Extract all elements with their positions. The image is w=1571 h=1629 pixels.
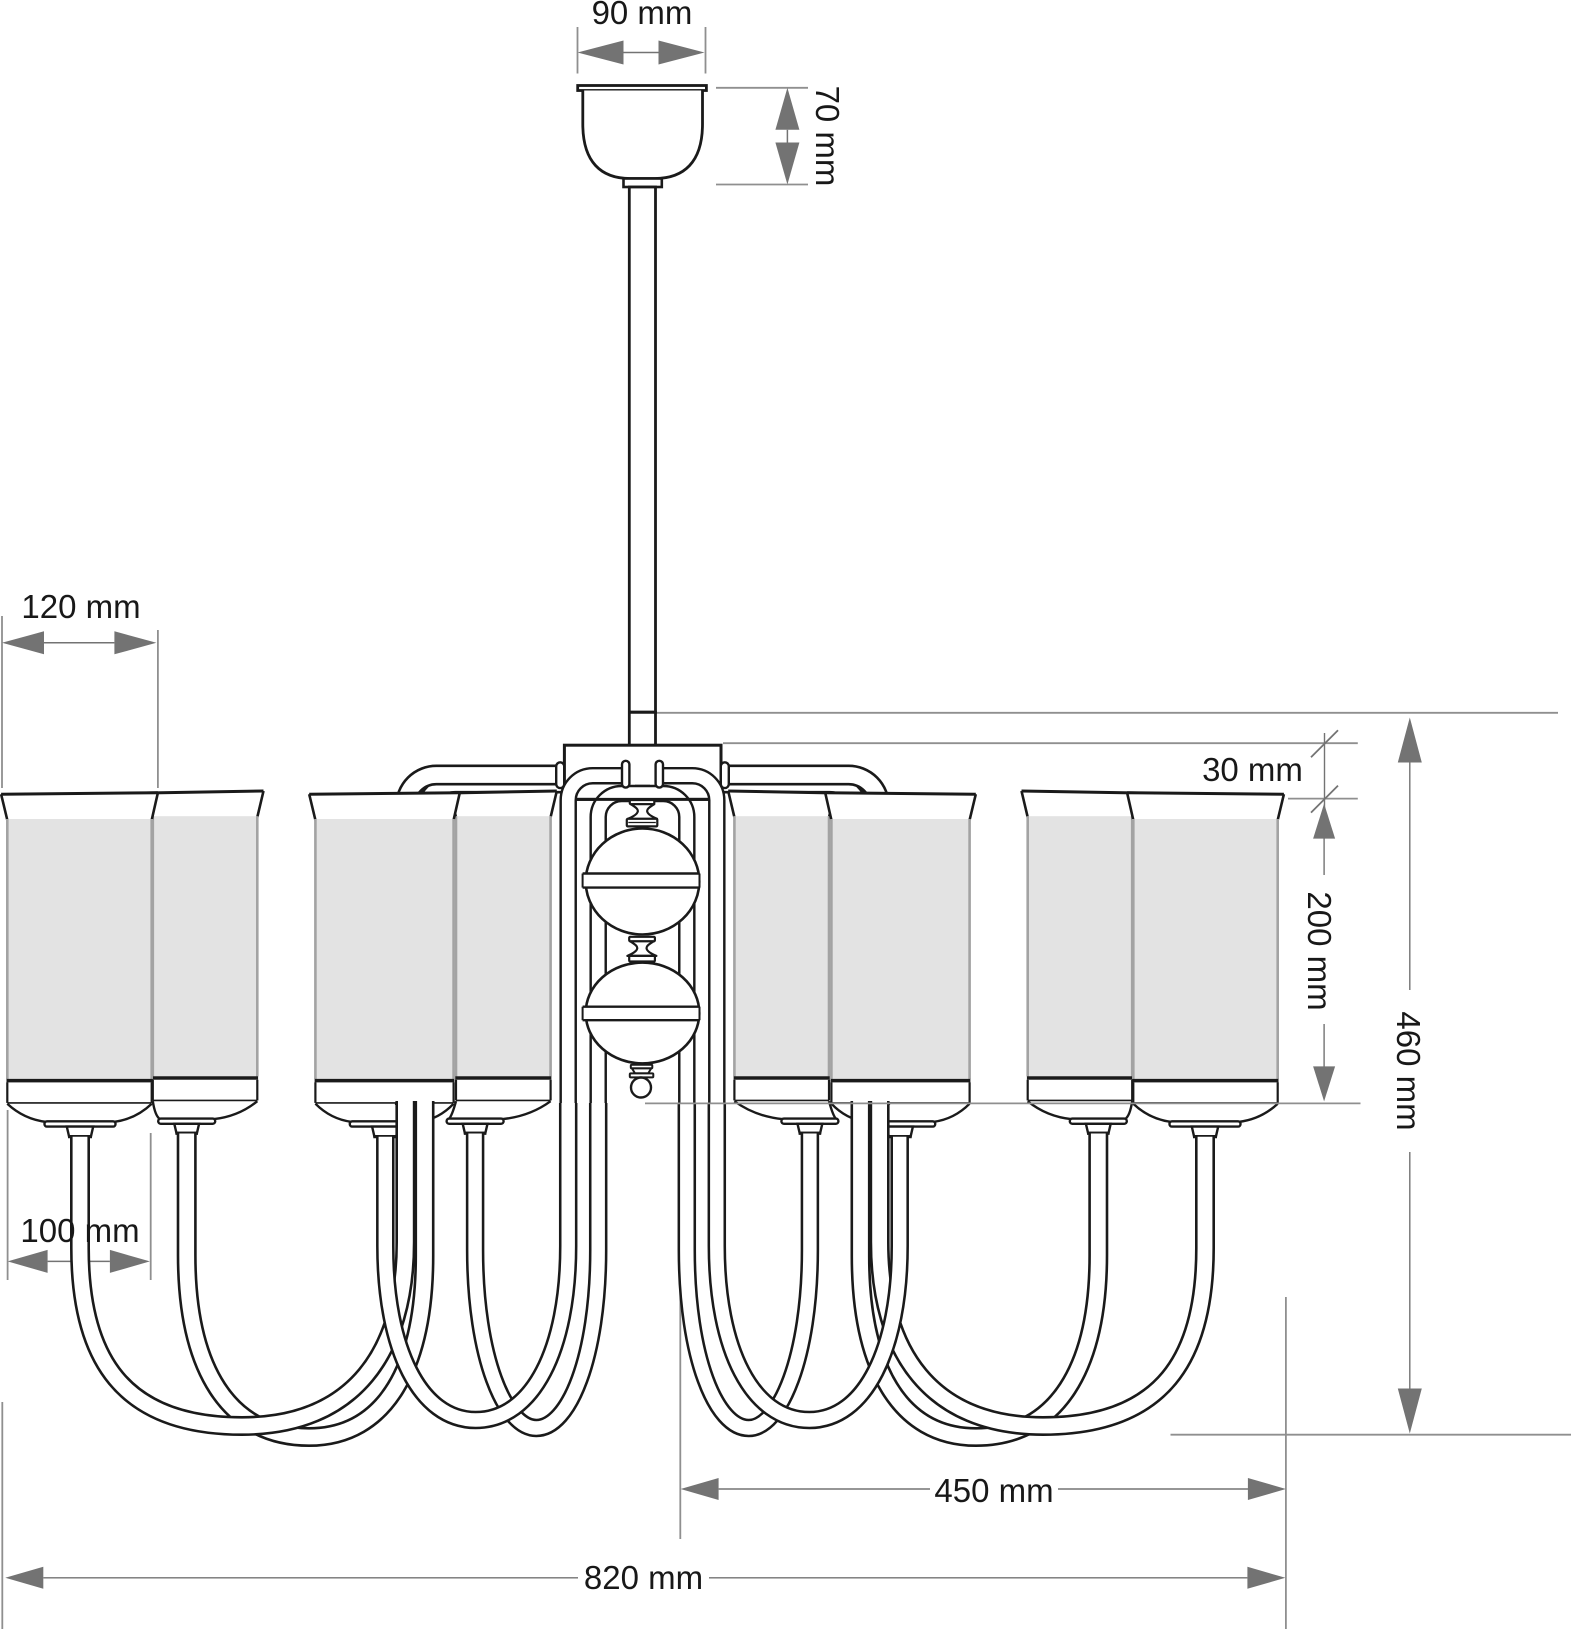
- svg-text:70 mm: 70 mm: [809, 86, 846, 187]
- svg-text:200 mm: 200 mm: [1301, 891, 1338, 1010]
- svg-text:100 mm: 100 mm: [20, 1212, 139, 1249]
- svg-text:820 mm: 820 mm: [584, 1559, 703, 1596]
- svg-text:30 mm: 30 mm: [1202, 751, 1303, 788]
- svg-text:450 mm: 450 mm: [934, 1472, 1053, 1509]
- svg-text:90 mm: 90 mm: [592, 0, 693, 31]
- svg-text:460 mm: 460 mm: [1390, 1011, 1427, 1130]
- svg-text:120 mm: 120 mm: [21, 588, 140, 625]
